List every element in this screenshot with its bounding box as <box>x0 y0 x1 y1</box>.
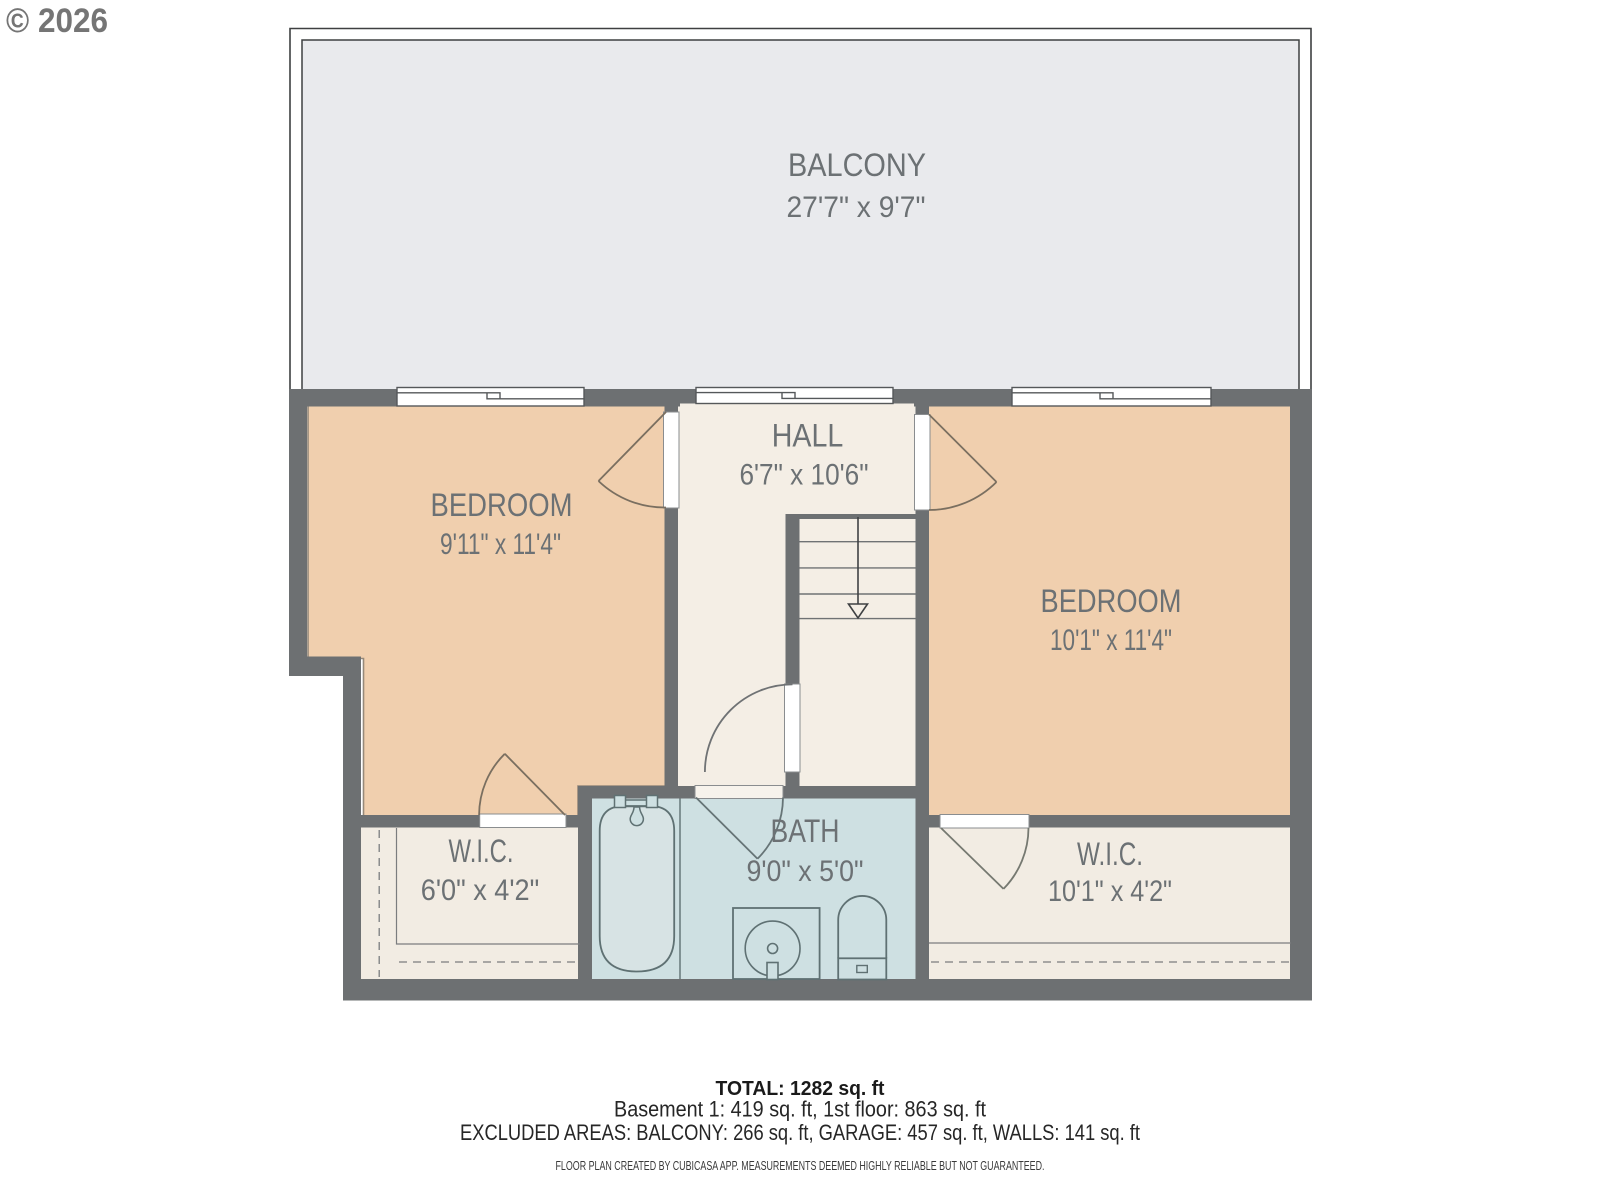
svg-text:W.I.C.: W.I.C. <box>449 833 514 869</box>
svg-text:10'1" x 4'2": 10'1" x 4'2" <box>1048 875 1172 908</box>
svg-text:9'0" x 5'0": 9'0" x 5'0" <box>747 855 864 888</box>
svg-text:9'11" x 11'4": 9'11" x 11'4" <box>440 528 561 561</box>
svg-text:W.I.C.: W.I.C. <box>1077 836 1143 872</box>
svg-text:BEDROOM: BEDROOM <box>1041 583 1182 619</box>
svg-text:6'0" x 4'2": 6'0" x 4'2" <box>421 874 540 907</box>
svg-text:HALL: HALL <box>772 418 844 454</box>
svg-text:Basement 1: 419 sq. ft, 1st fl: Basement 1: 419 sq. ft, 1st floor: 863 s… <box>614 1097 986 1122</box>
svg-text:© 2026: © 2026 <box>6 2 108 40</box>
svg-text:BATH: BATH <box>771 813 840 849</box>
svg-text:BEDROOM: BEDROOM <box>431 487 573 523</box>
svg-text:27'7" x 9'7": 27'7" x 9'7" <box>787 191 926 224</box>
svg-text:FLOOR PLAN CREATED BY CUBICASA: FLOOR PLAN CREATED BY CUBICASA APP. MEAS… <box>556 1158 1045 1173</box>
svg-text:10'1" x 11'4": 10'1" x 11'4" <box>1050 624 1172 657</box>
svg-text:6'7" x 10'6": 6'7" x 10'6" <box>740 459 869 492</box>
svg-text:EXCLUDED AREAS: BALCONY: 266 s: EXCLUDED AREAS: BALCONY: 266 sq. ft, GAR… <box>460 1120 1140 1145</box>
svg-text:BALCONY: BALCONY <box>788 147 926 183</box>
